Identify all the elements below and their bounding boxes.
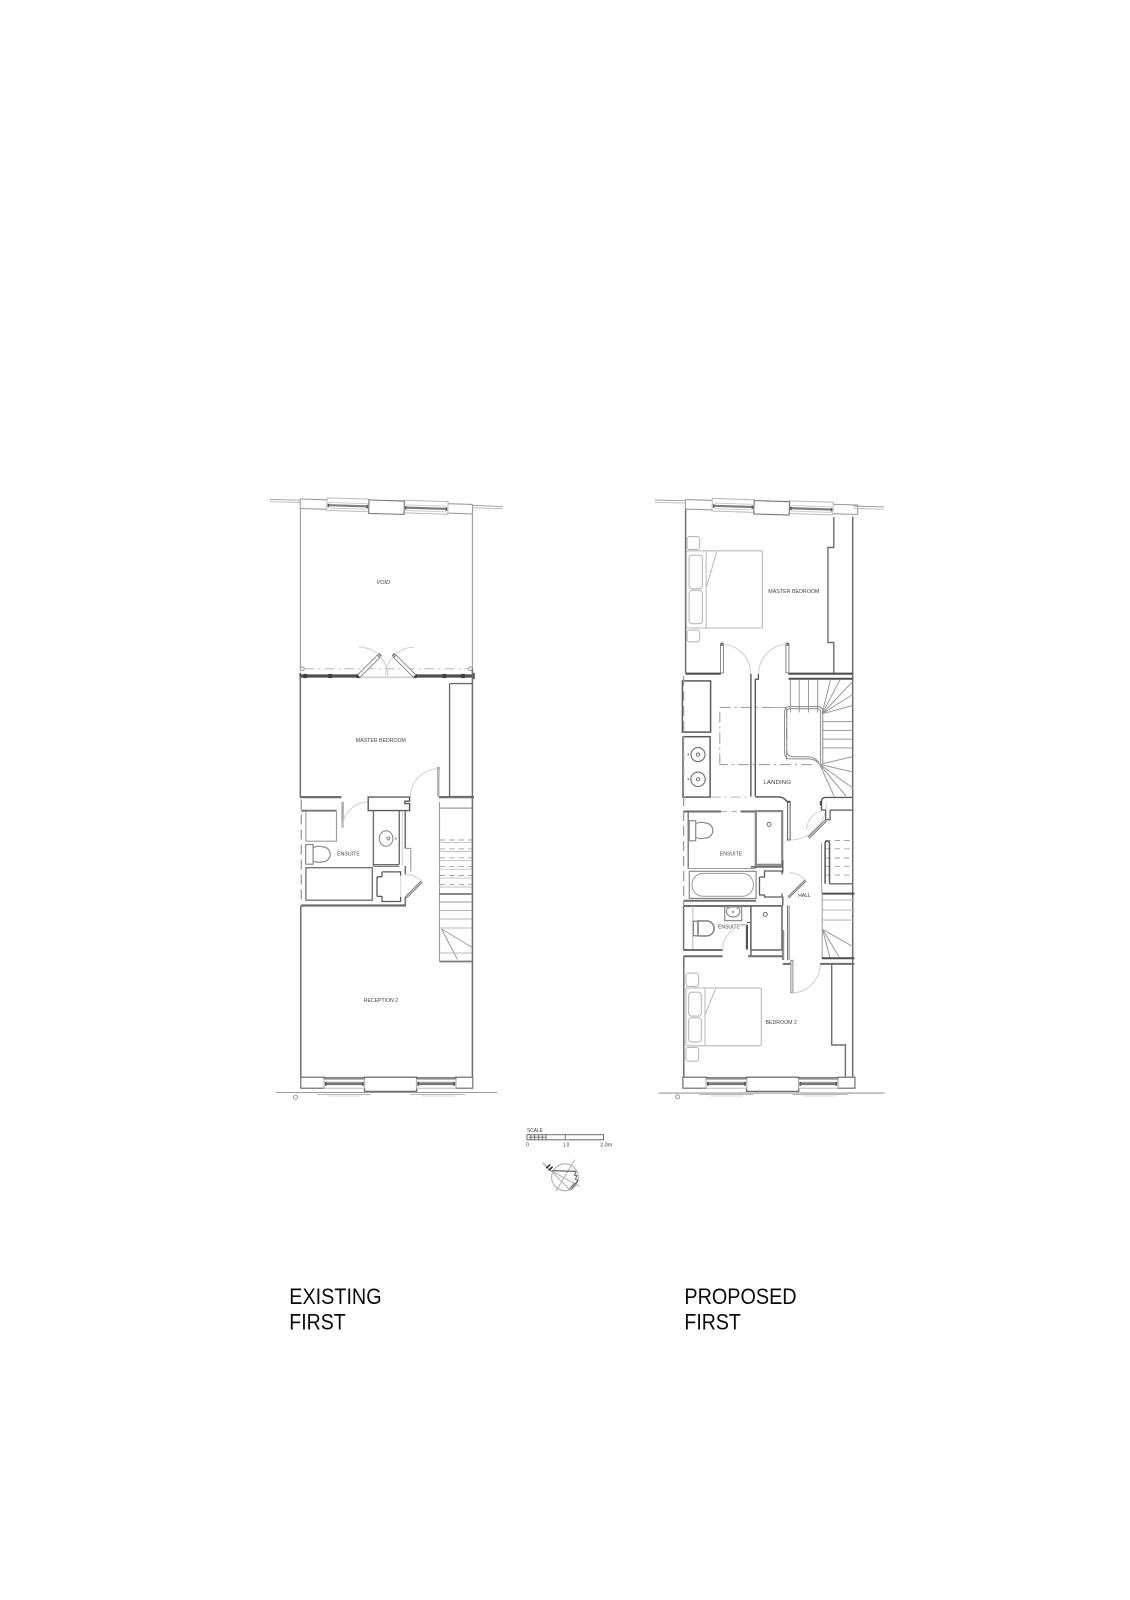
svg-text:PROPOSED: PROPOSED xyxy=(684,1284,796,1309)
svg-text:HALL: HALL xyxy=(798,893,811,899)
svg-text:ENSUITE: ENSUITE xyxy=(337,852,360,858)
svg-text:MASTER BEDROOM: MASTER BEDROOM xyxy=(768,589,819,595)
svg-text:1.0: 1.0 xyxy=(563,1142,570,1148)
svg-text:0: 0 xyxy=(526,1142,529,1148)
svg-text:SCALE: SCALE xyxy=(527,1128,543,1134)
svg-text:EXISTING: EXISTING xyxy=(289,1284,381,1309)
svg-text:MASTER BEDROOM: MASTER BEDROOM xyxy=(356,738,406,744)
svg-text:FIRST: FIRST xyxy=(684,1309,740,1334)
svg-text:RECEPTION 2: RECEPTION 2 xyxy=(364,998,398,1004)
svg-text:FIRST: FIRST xyxy=(289,1309,345,1334)
svg-text:2.0m: 2.0m xyxy=(600,1142,612,1148)
svg-text:BEDROOM 2: BEDROOM 2 xyxy=(765,1020,797,1026)
svg-text:LANDING: LANDING xyxy=(763,780,791,786)
svg-text:VOID: VOID xyxy=(376,580,390,586)
svg-text:ENSUITE: ENSUITE xyxy=(720,852,743,858)
